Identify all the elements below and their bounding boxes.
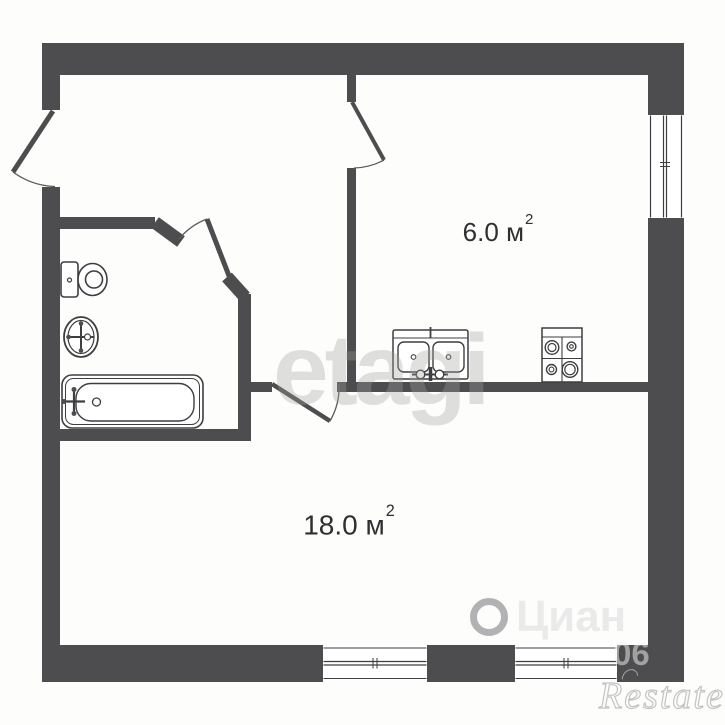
living-room-window-left-opening (323, 646, 427, 680)
bathroom-door (179, 219, 231, 281)
hall-kitchen-wall-lower (347, 168, 356, 383)
wall-left-upper (42, 43, 60, 110)
bathtub-drain (93, 398, 101, 406)
entry-door-leaf (13, 111, 53, 172)
kitchen-sink (393, 327, 468, 381)
wash-basin-drain (85, 334, 91, 340)
wall-right-upper (648, 43, 684, 115)
bathroom-wall-corner-upper (155, 223, 181, 242)
hall-living-wall-stub (251, 382, 272, 392)
wall-left-lower (42, 187, 60, 682)
bathtub-tap-knob (72, 411, 77, 416)
kitchen-area-value: 6.0 (463, 217, 499, 247)
kitchen-window (648, 115, 684, 218)
living-room-window-left (323, 646, 427, 680)
wall-bottom-right (617, 645, 684, 682)
toilet (61, 262, 107, 297)
wash-basin (64, 317, 98, 357)
bathtub-tap-knob (72, 387, 77, 392)
bathroom-wall-right (238, 294, 251, 440)
kitchen-door (352, 102, 384, 168)
living-room-area-label: 18.0 м2 (303, 511, 395, 539)
bathtub (62, 375, 204, 428)
floor-plan: 6.0 м2 18.0 м2 etagi Циан 06 Restate (0, 0, 725, 725)
kitchen-sink-tap-handle (435, 370, 444, 379)
wall-top (42, 43, 684, 75)
living-room-window-right (515, 646, 617, 680)
floor-plan-drawing (0, 0, 725, 725)
wall-bottom-middle (427, 645, 515, 682)
living-room-window-right-opening (515, 646, 617, 680)
stove (542, 328, 582, 382)
living-area-sup: 2 (386, 502, 395, 520)
living-area-value: 18.0 (303, 509, 358, 540)
wall-bottom-left (42, 645, 323, 682)
kitchen-door-swing-arc (354, 160, 384, 168)
wash-basin-tap-knob (79, 321, 84, 326)
living-room-door-leaf (272, 384, 330, 421)
entry-door-swing-arc (13, 172, 55, 187)
kitchen-living-wall (337, 382, 648, 392)
entry-door (13, 111, 55, 187)
living-area-unit: м (366, 509, 385, 540)
bathroom-door-leaf (207, 219, 231, 281)
living-room-door (272, 384, 339, 421)
kitchen-area-unit: м (506, 217, 524, 247)
kitchen-door-leaf (352, 102, 384, 160)
exterior-walls (42, 43, 684, 682)
bathtub-tap-knob (62, 399, 67, 404)
wash-basin-tap-knob (66, 335, 71, 340)
bathroom-wall-bottom (58, 429, 251, 441)
kitchen-sink-tap-handle (416, 370, 425, 379)
wash-basin-tap-knob (79, 348, 84, 353)
hall-kitchen-wall-upper (347, 75, 356, 102)
wall-right-lower (648, 218, 684, 682)
toilet-tank (61, 262, 78, 297)
kitchen-area-sup: 2 (525, 211, 533, 228)
kitchen-area-label: 6.0 м2 (463, 219, 534, 245)
bathroom-wall-top (58, 217, 155, 229)
